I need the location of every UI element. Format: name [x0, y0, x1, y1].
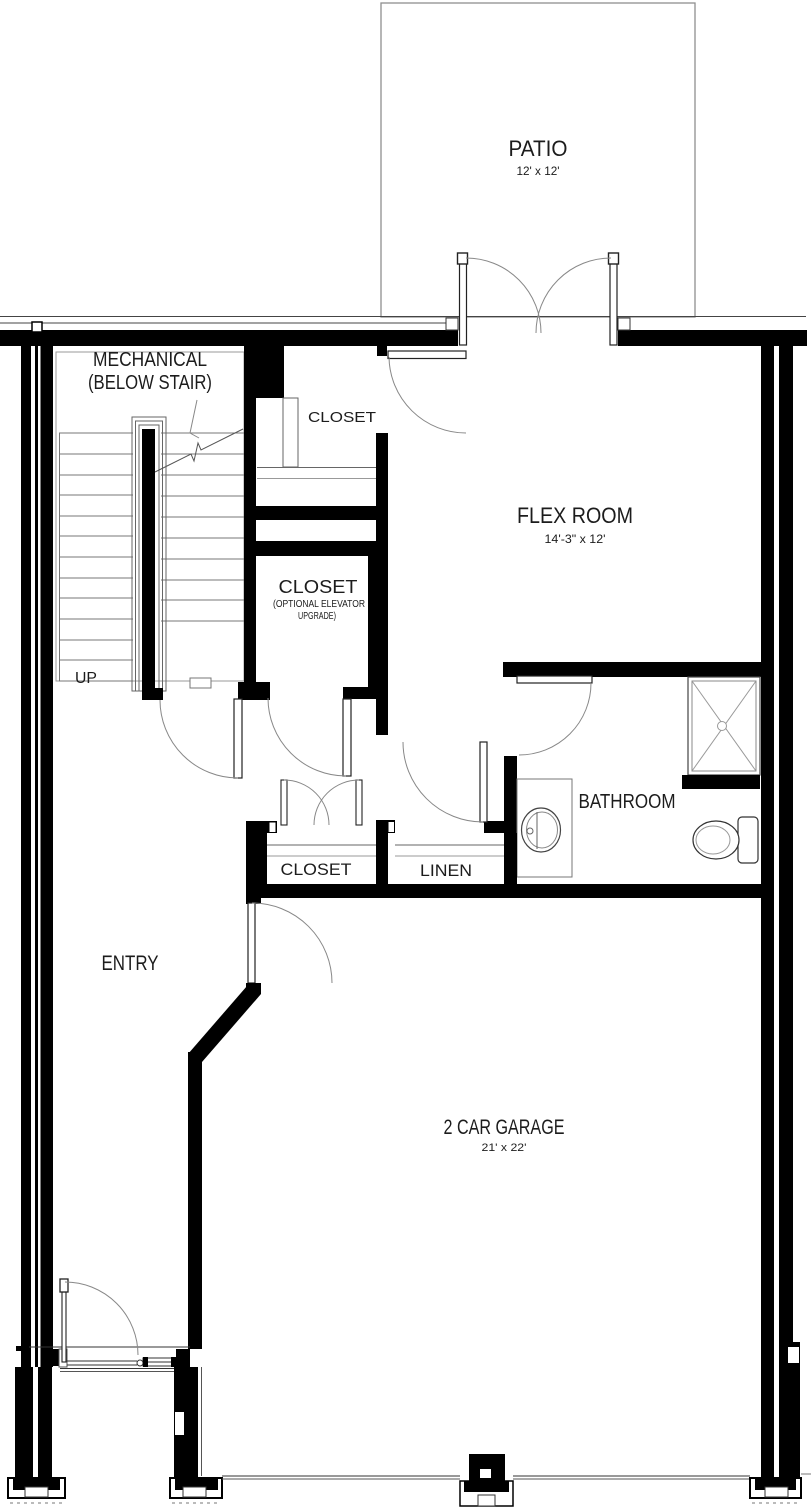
svg-text:MECHANICAL: MECHANICAL	[93, 349, 207, 371]
svg-text:UP: UP	[75, 670, 97, 687]
svg-text:21' x 22': 21' x 22'	[482, 1142, 527, 1154]
svg-text:UPGRADE): UPGRADE)	[298, 611, 336, 622]
svg-text:(BELOW STAIR): (BELOW STAIR)	[88, 372, 212, 394]
svg-text:CLOSET: CLOSET	[308, 409, 376, 426]
svg-text:PATIO: PATIO	[509, 136, 568, 161]
svg-text:12' x 12': 12' x 12'	[517, 164, 560, 178]
svg-text:BATHROOM: BATHROOM	[579, 791, 676, 813]
svg-text:(OPTIONAL ELEVATOR: (OPTIONAL ELEVATOR	[273, 599, 365, 610]
svg-text:ENTRY: ENTRY	[102, 951, 159, 975]
svg-text:CLOSET: CLOSET	[279, 577, 358, 597]
svg-text:FLEX ROOM: FLEX ROOM	[517, 503, 633, 528]
svg-text:14'-3" x 12': 14'-3" x 12'	[545, 532, 606, 546]
svg-text:LINEN: LINEN	[420, 861, 472, 880]
svg-text:CLOSET: CLOSET	[281, 860, 352, 879]
svg-text:2 CAR GARAGE: 2 CAR GARAGE	[444, 1116, 565, 1139]
